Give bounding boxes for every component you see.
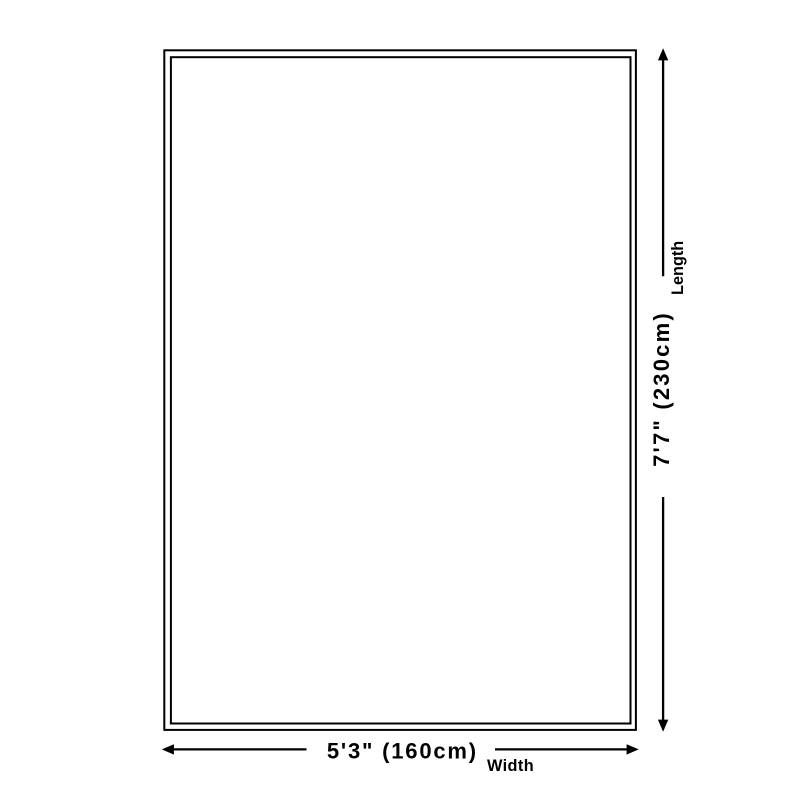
- svg-text:7'7" (230cm): 7'7" (230cm): [649, 311, 674, 467]
- svg-text:Width: Width: [487, 757, 534, 775]
- svg-text:Length: Length: [669, 241, 687, 295]
- svg-text:5'3" (160cm): 5'3" (160cm): [327, 739, 478, 764]
